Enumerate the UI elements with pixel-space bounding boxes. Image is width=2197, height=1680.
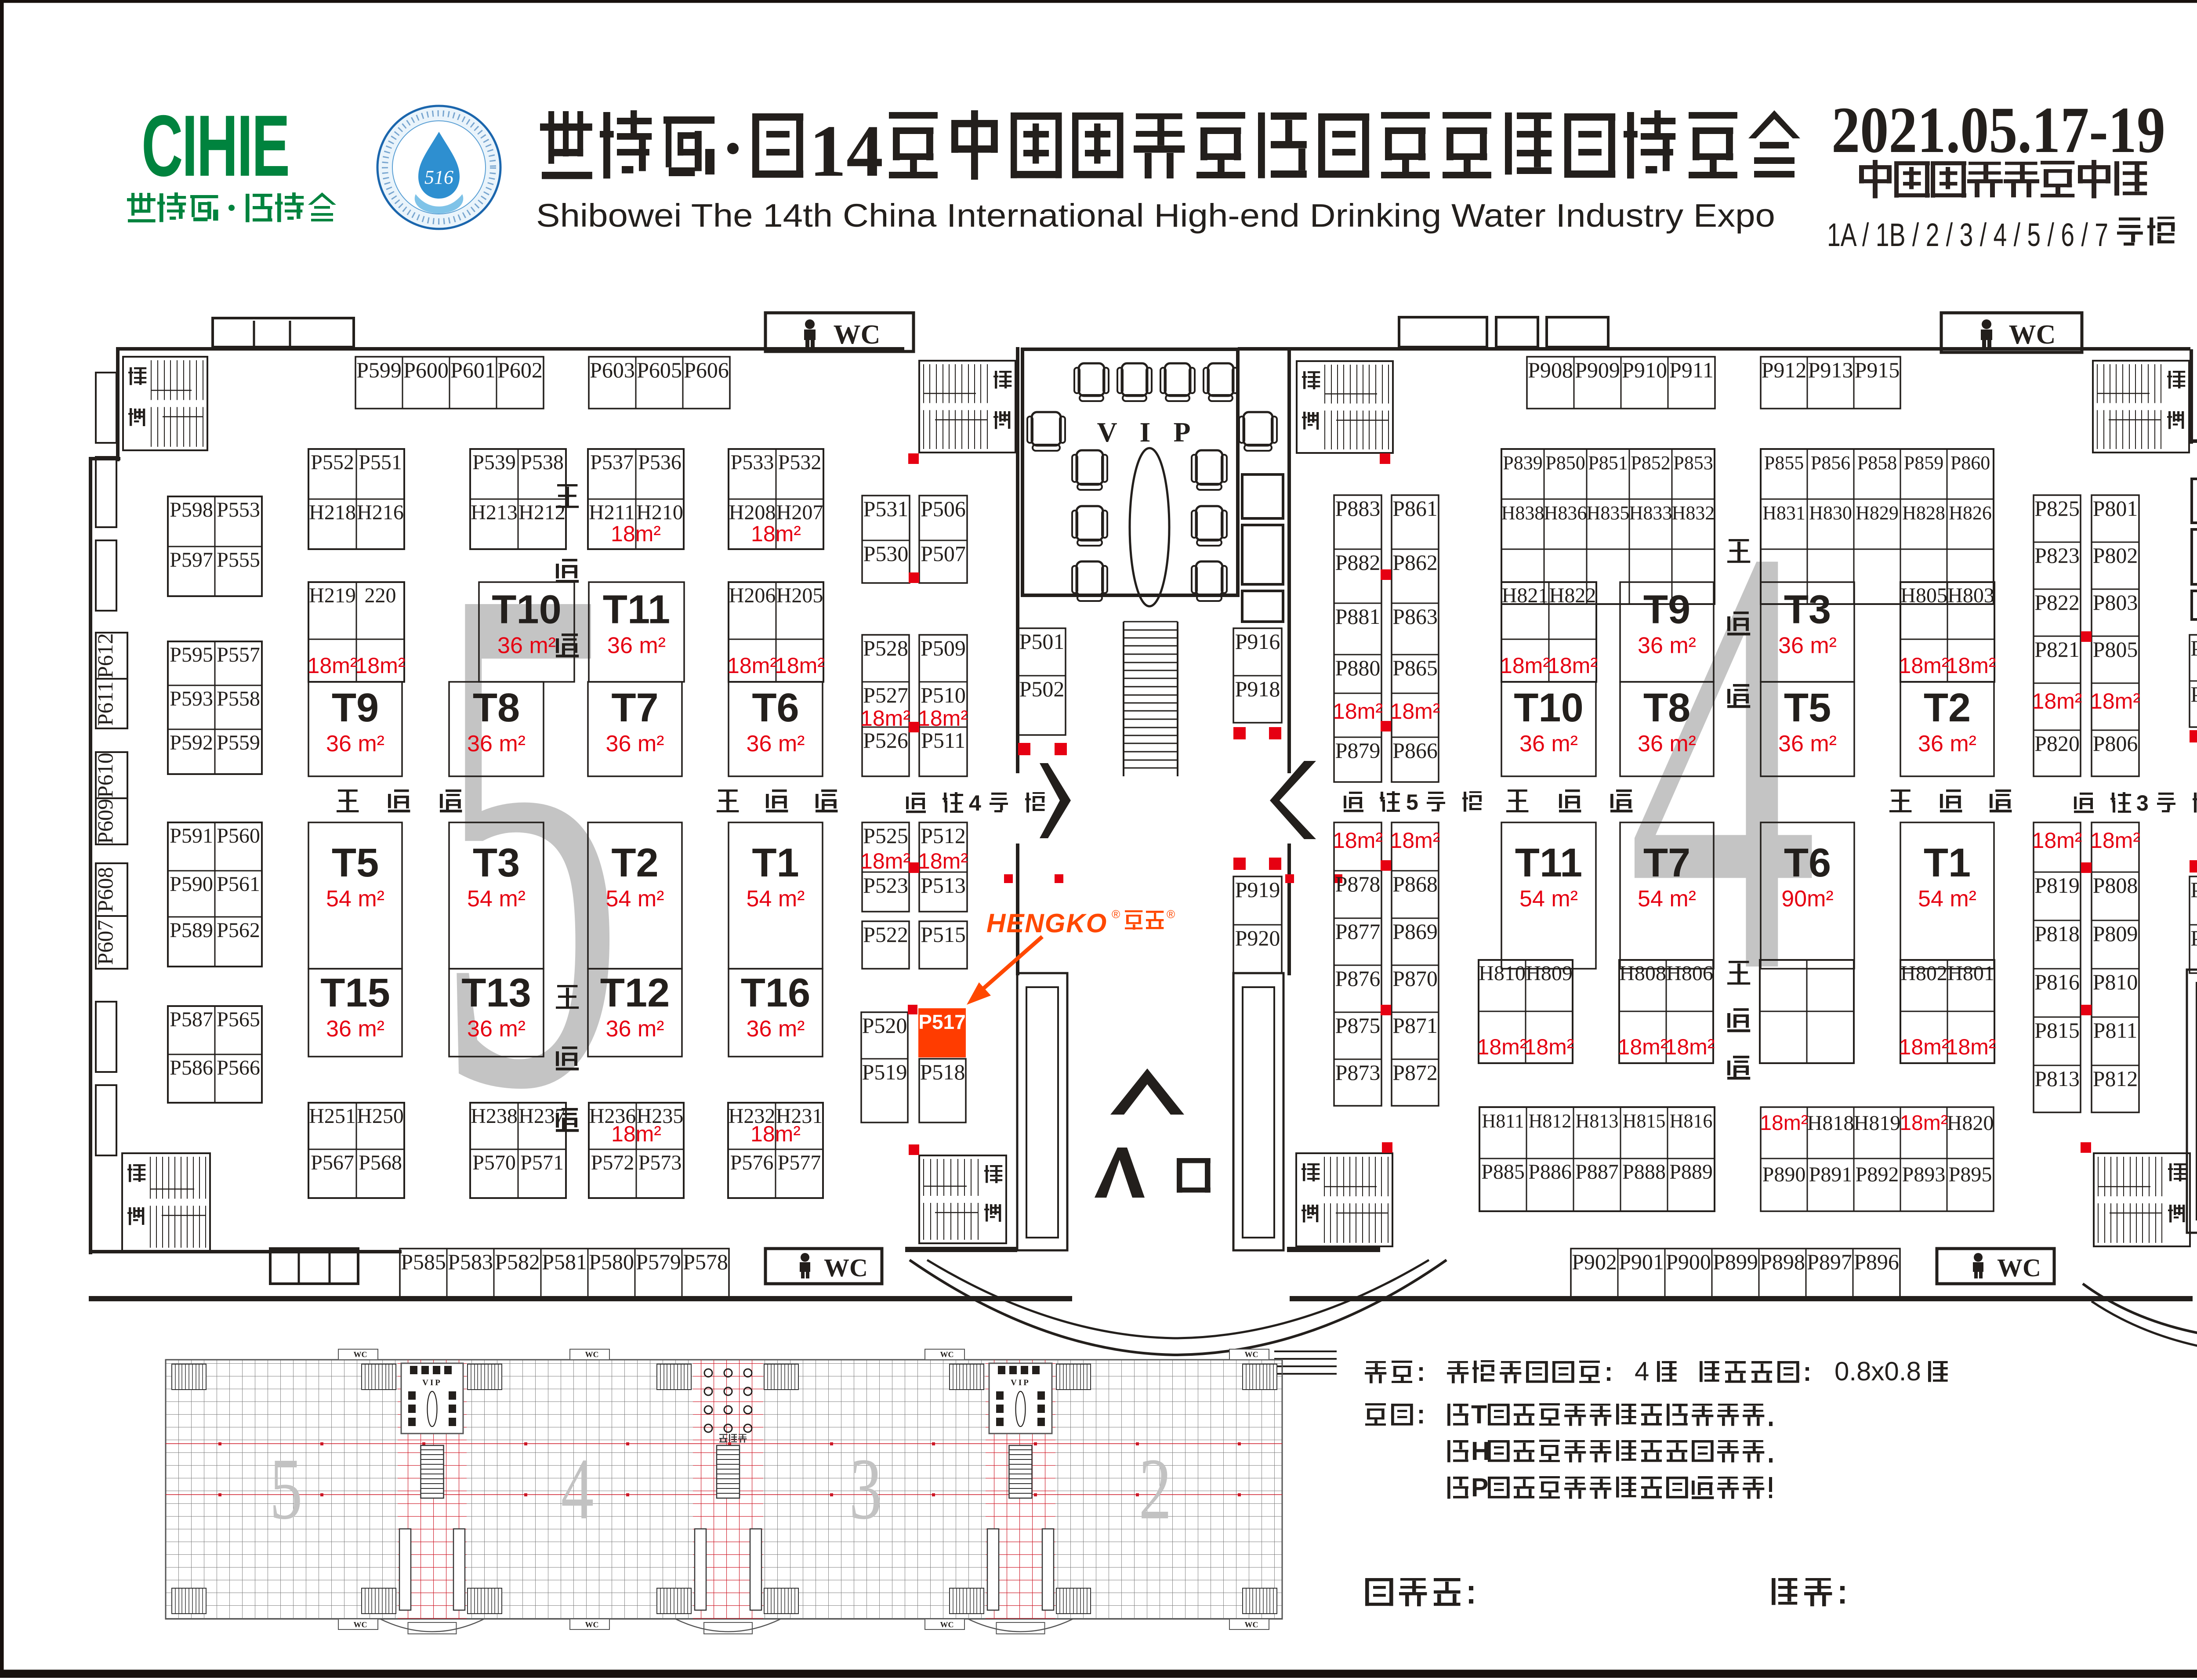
- svg-text:P873: P873: [1335, 1060, 1381, 1085]
- svg-text:P559: P559: [217, 731, 260, 754]
- svg-text:36 m²: 36 m²: [326, 731, 384, 757]
- svg-text:36 m²: 36 m²: [1638, 731, 1696, 757]
- svg-text:P887: P887: [1575, 1160, 1619, 1184]
- svg-text:P565: P565: [217, 1008, 260, 1031]
- svg-text:P510: P510: [921, 683, 966, 707]
- svg-text:P519: P519: [862, 1060, 907, 1084]
- svg-text:3: 3: [2136, 791, 2149, 815]
- svg-text:P599: P599: [356, 358, 402, 382]
- svg-text:P852: P852: [1631, 452, 1670, 474]
- svg-text:P502: P502: [1019, 677, 1065, 701]
- svg-text:H815: H815: [1623, 1110, 1666, 1132]
- svg-text:P885: P885: [1481, 1160, 1525, 1184]
- svg-text:54 m²: 54 m²: [747, 886, 805, 912]
- svg-text:P530: P530: [863, 541, 909, 566]
- svg-text:P851: P851: [1588, 452, 1628, 474]
- svg-text:P880: P880: [1335, 655, 1381, 680]
- svg-text:P889: P889: [1669, 1160, 1713, 1184]
- svg-text:P520: P520: [862, 1013, 907, 1038]
- svg-text:P925: P925: [2190, 926, 2197, 950]
- svg-text:H219: H219: [309, 584, 356, 607]
- svg-text:18m²: 18m²: [750, 1122, 801, 1146]
- svg-text:18m²: 18m²: [775, 653, 825, 678]
- svg-text:P908: P908: [1528, 358, 1573, 382]
- svg-text:P511: P511: [921, 728, 965, 753]
- svg-text:P812: P812: [2093, 1066, 2138, 1091]
- svg-text:H801: H801: [1947, 962, 1994, 985]
- svg-text:P531: P531: [863, 496, 909, 521]
- svg-text:H808: H808: [1619, 962, 1666, 985]
- svg-text:H831: H831: [1762, 502, 1805, 524]
- svg-text:H218: H218: [309, 501, 356, 524]
- svg-text:P560: P560: [217, 824, 260, 847]
- svg-text:T2: T2: [1924, 685, 1971, 730]
- svg-text:P895: P895: [1949, 1163, 1992, 1186]
- svg-text:P558: P558: [217, 687, 260, 710]
- svg-text:36 m²: 36 m²: [1778, 731, 1837, 757]
- svg-text:0.8x0.8: 0.8x0.8: [1834, 1357, 1921, 1386]
- svg-text:P609: P609: [93, 799, 117, 844]
- svg-text:P578: P578: [683, 1249, 728, 1274]
- svg-text:H805: H805: [1900, 584, 1947, 607]
- svg-text:T7: T7: [611, 685, 658, 730]
- svg-text:P509: P509: [921, 636, 966, 660]
- svg-text:H210: H210: [636, 501, 683, 524]
- svg-text:P858: P858: [1857, 452, 1897, 474]
- svg-text:18m²: 18m²: [1760, 1112, 1808, 1135]
- svg-text:P551: P551: [359, 451, 402, 474]
- svg-text:T6: T6: [752, 685, 799, 730]
- svg-text:P919: P919: [1235, 877, 1280, 902]
- svg-text:H803: H803: [1947, 584, 1994, 607]
- svg-text:54 m²: 54 m²: [1918, 886, 1976, 912]
- svg-text:P606: P606: [684, 358, 729, 382]
- svg-text:H802: H802: [1900, 962, 1947, 985]
- svg-text:18m²: 18m²: [1899, 1035, 1949, 1059]
- svg-text:P539: P539: [472, 451, 516, 474]
- svg-text:P901: P901: [1619, 1249, 1664, 1274]
- svg-text:P900: P900: [1666, 1249, 1711, 1274]
- svg-text:WC: WC: [940, 1620, 954, 1629]
- svg-text:T13: T13: [461, 970, 531, 1015]
- svg-text:18m²: 18m²: [2090, 828, 2140, 853]
- svg-text:T3: T3: [1784, 587, 1831, 632]
- svg-text:P868: P868: [1392, 872, 1438, 896]
- svg-text:18m²: 18m²: [611, 1122, 661, 1146]
- svg-text:P501: P501: [1019, 629, 1065, 654]
- svg-text:T7: T7: [1643, 840, 1690, 885]
- svg-text:H810: H810: [1479, 962, 1526, 985]
- svg-text:P507: P507: [921, 541, 966, 566]
- svg-text:P537: P537: [590, 451, 634, 474]
- svg-text:WC: WC: [354, 1350, 367, 1359]
- svg-text:®: ®: [1167, 908, 1175, 921]
- svg-text:H213: H213: [471, 501, 518, 524]
- svg-text:Shibowei The 14th China Intern: Shibowei The 14th China International Hi…: [536, 197, 1775, 234]
- svg-text:P571: P571: [520, 1151, 564, 1174]
- svg-text:P910: P910: [1622, 358, 1667, 382]
- svg-text:P553: P553: [217, 498, 260, 521]
- svg-text:P580: P580: [589, 1249, 634, 1274]
- svg-text:36 m²: 36 m²: [1638, 633, 1696, 659]
- svg-text:WC: WC: [354, 1620, 367, 1629]
- svg-text:P590: P590: [170, 873, 213, 896]
- svg-text:P821: P821: [2034, 637, 2080, 662]
- svg-text:H216: H216: [357, 501, 404, 524]
- svg-text:P866: P866: [1392, 738, 1438, 763]
- svg-text:VIP: VIP: [1011, 1378, 1030, 1387]
- svg-text:P916: P916: [1235, 629, 1280, 654]
- svg-text:18m²: 18m²: [2090, 689, 2140, 713]
- svg-text:P820: P820: [2034, 731, 2080, 756]
- svg-text:H208: H208: [729, 501, 776, 524]
- svg-text:P863: P863: [1392, 604, 1438, 629]
- svg-text:P890: P890: [1762, 1163, 1806, 1186]
- svg-text:P816: P816: [2034, 970, 2080, 994]
- svg-text:P813: P813: [2034, 1066, 2080, 1091]
- svg-text:T1: T1: [752, 840, 799, 885]
- svg-text:WC: WC: [834, 320, 881, 350]
- svg-text:P608: P608: [93, 867, 117, 912]
- svg-text:T: T: [1471, 1400, 1487, 1429]
- svg-text:18m²: 18m²: [1548, 653, 1598, 678]
- svg-text:P592: P592: [170, 731, 213, 754]
- svg-text:P859: P859: [1904, 452, 1943, 474]
- svg-text:P525: P525: [863, 823, 908, 848]
- svg-text:P528: P528: [863, 636, 908, 660]
- svg-text:WC: WC: [1245, 1620, 1258, 1629]
- svg-text:54 m²: 54 m²: [606, 886, 664, 912]
- svg-text:H211: H211: [589, 501, 635, 524]
- svg-text:P878: P878: [1335, 872, 1381, 896]
- svg-text:WC: WC: [940, 1350, 954, 1359]
- svg-text:VIP: VIP: [422, 1378, 442, 1387]
- svg-text:14: 14: [809, 110, 883, 192]
- svg-text:18m²: 18m²: [751, 521, 801, 546]
- svg-text:4: 4: [561, 1440, 594, 1538]
- svg-text:36 m²: 36 m²: [606, 1016, 664, 1042]
- svg-text:P506: P506: [921, 496, 966, 521]
- svg-text:36 m²: 36 m²: [606, 731, 664, 757]
- svg-text:P920: P920: [1235, 926, 1280, 950]
- svg-text:P811: P811: [2093, 1018, 2138, 1043]
- svg-text:T10: T10: [1514, 685, 1584, 730]
- svg-text:36 m²: 36 m²: [467, 1016, 526, 1042]
- svg-text:P561: P561: [217, 873, 260, 896]
- svg-text:P902: P902: [1572, 1249, 1617, 1274]
- svg-text:P893: P893: [1902, 1163, 1946, 1186]
- svg-text:P899: P899: [1713, 1249, 1758, 1274]
- svg-text:T5: T5: [1784, 685, 1831, 730]
- svg-text:4: 4: [1635, 1357, 1649, 1386]
- svg-text:18m²: 18m²: [1390, 828, 1440, 853]
- svg-text:P579: P579: [636, 1249, 681, 1274]
- svg-text:18m²: 18m²: [2032, 828, 2082, 853]
- svg-text:P562: P562: [217, 919, 260, 942]
- svg-text:P611: P611: [93, 681, 117, 726]
- svg-text:P810: P810: [2093, 970, 2138, 994]
- svg-text:T16: T16: [741, 970, 811, 1015]
- svg-text:18m²: 18m²: [1900, 1112, 1947, 1135]
- svg-text:P515: P515: [921, 922, 966, 947]
- svg-text:H826: H826: [1949, 502, 1992, 524]
- svg-text:WC: WC: [2009, 320, 2056, 350]
- svg-text:P598: P598: [170, 498, 213, 521]
- svg-text:5: 5: [269, 1440, 302, 1538]
- svg-text:H207: H207: [776, 501, 823, 524]
- svg-text:H819: H819: [1854, 1112, 1901, 1135]
- svg-text:P865: P865: [1392, 655, 1438, 680]
- svg-text:P869: P869: [1392, 919, 1438, 944]
- svg-text:P601: P601: [450, 358, 496, 382]
- svg-text:18m²: 18m²: [1333, 699, 1383, 724]
- svg-text:WC: WC: [1245, 1350, 1258, 1359]
- svg-text:P517: P517: [918, 1010, 965, 1033]
- svg-text:P607: P607: [93, 920, 117, 965]
- svg-text:2021.05.17-19: 2021.05.17-19: [1831, 94, 2165, 167]
- svg-text:T2: T2: [611, 840, 658, 885]
- svg-text:H820: H820: [1947, 1112, 1994, 1135]
- svg-text:H212: H212: [518, 501, 566, 524]
- svg-text:P897: P897: [1807, 1249, 1852, 1274]
- svg-text:P576: P576: [730, 1151, 774, 1174]
- svg-text:P898: P898: [1760, 1249, 1805, 1274]
- svg-text:90m²: 90m²: [1781, 886, 1833, 912]
- svg-text:P585: P585: [401, 1249, 446, 1274]
- svg-text:P600: P600: [403, 358, 449, 382]
- svg-text:36 m²: 36 m²: [497, 633, 556, 659]
- svg-text:P513: P513: [921, 873, 966, 898]
- svg-text:36 m²: 36 m²: [607, 633, 666, 659]
- svg-text:T8: T8: [1643, 685, 1690, 730]
- svg-text:P881: P881: [1335, 604, 1381, 629]
- svg-text:P922: P922: [2190, 682, 2197, 706]
- svg-text:H835: H835: [1587, 502, 1630, 524]
- svg-text:36 m²: 36 m²: [1519, 731, 1578, 757]
- svg-text:H833: H833: [1629, 502, 1672, 524]
- svg-text:H818: H818: [1807, 1112, 1854, 1135]
- svg-text:T15: T15: [320, 970, 390, 1015]
- svg-text:P861: P861: [1392, 496, 1438, 521]
- svg-text:P522: P522: [863, 922, 908, 947]
- svg-text:P593: P593: [170, 687, 213, 710]
- svg-text:P801: P801: [2093, 496, 2138, 521]
- svg-text:P823: P823: [2034, 543, 2080, 568]
- svg-text:P806: P806: [2093, 731, 2138, 756]
- svg-text:HENGKO: HENGKO: [986, 909, 1107, 938]
- svg-text:P566: P566: [217, 1056, 260, 1079]
- svg-text:T8: T8: [473, 685, 520, 730]
- svg-text:T5: T5: [332, 840, 379, 885]
- svg-text:P526: P526: [863, 728, 908, 753]
- svg-text:P875: P875: [1335, 1013, 1381, 1038]
- svg-text:WC: WC: [585, 1620, 599, 1629]
- svg-text:P879: P879: [1335, 738, 1381, 763]
- svg-text:P819: P819: [2034, 873, 2080, 898]
- svg-text:P597: P597: [170, 548, 213, 572]
- svg-text:36 m²: 36 m²: [1778, 633, 1837, 659]
- svg-text:220: 220: [365, 584, 396, 607]
- svg-text:T9: T9: [1643, 587, 1690, 632]
- svg-text:54 m²: 54 m²: [467, 886, 526, 912]
- svg-text:T9: T9: [332, 685, 379, 730]
- svg-text:P809: P809: [2093, 921, 2138, 946]
- svg-text:54 m²: 54 m²: [326, 886, 384, 912]
- svg-text:P818: P818: [2034, 921, 2080, 946]
- svg-text:516: 516: [424, 167, 453, 188]
- svg-text:H811: H811: [1482, 1110, 1524, 1132]
- svg-text:18m²: 18m²: [860, 849, 910, 873]
- svg-text:P570: P570: [472, 1151, 516, 1174]
- svg-text:P538: P538: [520, 451, 564, 474]
- svg-text:P557: P557: [217, 643, 260, 666]
- svg-text:H206: H206: [729, 584, 776, 607]
- svg-text:36 m²: 36 m²: [747, 1016, 805, 1042]
- svg-text:36 m²: 36 m²: [467, 731, 526, 757]
- svg-text:P921: P921: [2190, 636, 2197, 660]
- svg-text:P891: P891: [1809, 1163, 1853, 1186]
- svg-text:P512: P512: [921, 823, 966, 848]
- svg-text:H238: H238: [471, 1104, 518, 1128]
- svg-text:T11: T11: [1515, 840, 1582, 885]
- svg-text:P912: P912: [1762, 358, 1807, 382]
- svg-text:P886: P886: [1528, 1160, 1572, 1184]
- svg-text:H816: H816: [1670, 1110, 1713, 1132]
- svg-text:T11: T11: [603, 587, 670, 632]
- svg-text:36 m²: 36 m²: [747, 731, 805, 757]
- svg-text:18m²: 18m²: [860, 706, 910, 731]
- svg-text:18m²: 18m²: [1333, 828, 1383, 853]
- svg-text:P582: P582: [495, 1249, 540, 1274]
- svg-text:P605: P605: [637, 358, 682, 382]
- svg-text:P892: P892: [1856, 1163, 1899, 1186]
- svg-text:18m²: 18m²: [1390, 699, 1440, 724]
- svg-text:P: P: [1471, 1473, 1488, 1502]
- svg-text:P918: P918: [1235, 677, 1280, 701]
- svg-text:P882: P882: [1335, 550, 1381, 575]
- svg-text:2: 2: [1138, 1440, 1171, 1538]
- svg-text:CIHIE: CIHIE: [141, 97, 289, 195]
- svg-text:P913: P913: [1808, 358, 1853, 382]
- svg-text:H821: H821: [1502, 584, 1549, 607]
- svg-text:P888: P888: [1622, 1160, 1666, 1184]
- svg-text:P856: P856: [1811, 452, 1850, 474]
- svg-text:P532: P532: [778, 451, 822, 474]
- svg-text:P855: P855: [1764, 452, 1804, 474]
- svg-text:T12: T12: [600, 970, 670, 1015]
- svg-text:T10: T10: [492, 587, 562, 632]
- svg-text:18m²: 18m²: [1946, 1035, 1996, 1059]
- svg-text:P568: P568: [359, 1151, 402, 1174]
- svg-text:P896: P896: [1854, 1249, 1899, 1274]
- svg-text:H812: H812: [1529, 1110, 1572, 1132]
- svg-text:H836: H836: [1544, 502, 1587, 524]
- svg-text:P862: P862: [1392, 550, 1438, 575]
- svg-text:P805: P805: [2093, 637, 2138, 662]
- svg-text:H250: H250: [357, 1104, 404, 1128]
- svg-text:P915: P915: [1855, 358, 1900, 382]
- svg-text:P577: P577: [778, 1151, 821, 1174]
- svg-text:18m²: 18m²: [308, 653, 358, 678]
- svg-text:V I P: V I P: [1097, 416, 1198, 448]
- svg-text:3: 3: [849, 1440, 882, 1538]
- svg-text:WC: WC: [1997, 1253, 2041, 1282]
- svg-text:P591: P591: [170, 824, 213, 847]
- svg-text:54 m²: 54 m²: [1519, 886, 1578, 912]
- svg-text:P850: P850: [1545, 452, 1585, 474]
- svg-text:P612: P612: [93, 633, 117, 678]
- svg-text:36 m²: 36 m²: [326, 1016, 384, 1042]
- svg-text:P527: P527: [863, 683, 908, 707]
- svg-text:H809: H809: [1526, 962, 1573, 985]
- svg-text:P909: P909: [1575, 358, 1620, 382]
- svg-text:H832: H832: [1672, 502, 1715, 524]
- svg-text:H838: H838: [1501, 502, 1544, 524]
- svg-text:®: ®: [1112, 908, 1120, 921]
- svg-text:P815: P815: [2034, 1018, 2080, 1043]
- svg-text:P610: P610: [93, 753, 117, 798]
- svg-text:P567: P567: [311, 1151, 354, 1174]
- svg-text:P822: P822: [2034, 590, 2080, 615]
- svg-text:36 m²: 36 m²: [1918, 731, 1976, 757]
- svg-text:H813: H813: [1576, 1110, 1619, 1132]
- svg-text:P802: P802: [2093, 543, 2138, 568]
- svg-text:P573: P573: [638, 1151, 682, 1174]
- svg-text:P589: P589: [170, 919, 213, 942]
- svg-text:P595: P595: [170, 643, 213, 666]
- svg-text:18m²: 18m²: [1477, 1035, 1527, 1059]
- svg-text:H251: H251: [309, 1104, 356, 1128]
- svg-text:P518: P518: [920, 1060, 965, 1084]
- svg-text:P803: P803: [2093, 590, 2138, 615]
- svg-text:P853: P853: [1673, 452, 1713, 474]
- svg-text:18m²: 18m²: [1618, 1035, 1668, 1059]
- svg-text:P825: P825: [2034, 496, 2080, 521]
- svg-text:18m²: 18m²: [1899, 653, 1949, 678]
- svg-text:18m²: 18m²: [1665, 1035, 1715, 1059]
- svg-text:P839: P839: [1503, 452, 1542, 474]
- svg-text:P872: P872: [1392, 1060, 1438, 1085]
- svg-text:WC: WC: [824, 1253, 868, 1282]
- svg-text:P572: P572: [591, 1151, 634, 1174]
- svg-text:P870: P870: [1392, 966, 1438, 991]
- svg-text:H205: H205: [776, 584, 823, 607]
- svg-text:18m²: 18m²: [918, 706, 968, 731]
- svg-text:P923: P923: [2190, 877, 2197, 902]
- svg-text:H828: H828: [1902, 502, 1945, 524]
- svg-text:P911: P911: [1669, 358, 1714, 382]
- svg-text:T3: T3: [473, 840, 520, 885]
- svg-text:H806: H806: [1666, 962, 1713, 985]
- svg-text:T6: T6: [1784, 840, 1831, 885]
- svg-text:WC: WC: [585, 1350, 599, 1359]
- svg-text:P552: P552: [311, 451, 354, 474]
- svg-text:H822: H822: [1549, 584, 1596, 607]
- svg-text:P555: P555: [217, 548, 260, 572]
- svg-text:18m²: 18m²: [1946, 653, 1996, 678]
- svg-text:P876: P876: [1335, 966, 1381, 991]
- svg-text:P860: P860: [1950, 452, 1990, 474]
- svg-text:P603: P603: [590, 358, 635, 382]
- svg-text:5: 5: [1406, 790, 1418, 815]
- svg-text:P533: P533: [731, 451, 774, 474]
- svg-text:4: 4: [969, 791, 981, 815]
- svg-text:18m²: 18m²: [611, 521, 661, 546]
- svg-text:54 m²: 54 m²: [1638, 886, 1696, 912]
- svg-text:18m²: 18m²: [1500, 653, 1550, 678]
- svg-text:H: H: [1471, 1437, 1490, 1466]
- svg-text:H829: H829: [1856, 502, 1899, 524]
